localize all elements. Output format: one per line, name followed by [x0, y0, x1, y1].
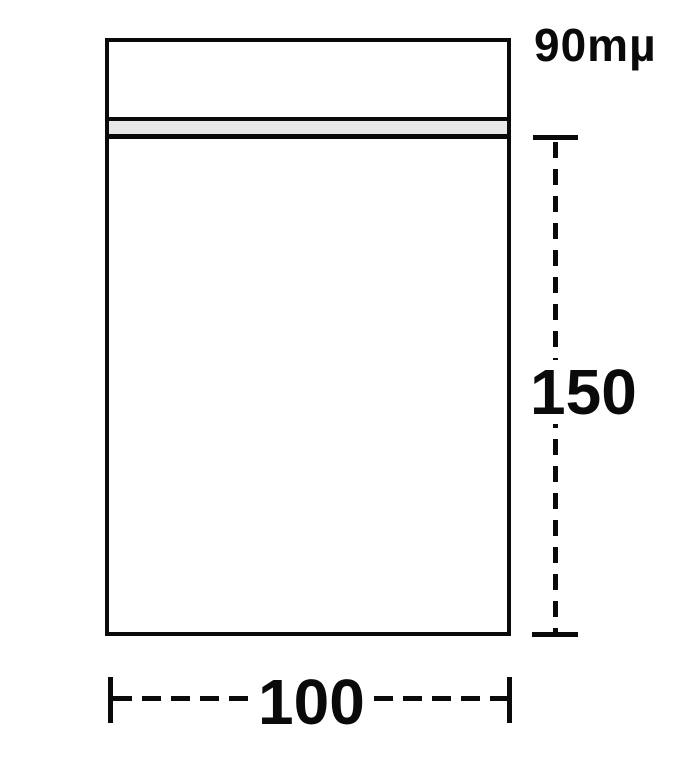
width-dim-label: 100 [250, 670, 373, 734]
width-dim-right-tick [507, 677, 512, 723]
height-dim-bottom-tick [532, 632, 578, 637]
bag-outline [105, 38, 511, 636]
height-dim-label: 150 [527, 360, 640, 424]
thickness-label: 90mµ [534, 22, 657, 68]
bag-dimension-diagram: 90mµ 150 100 [0, 0, 688, 767]
height-dim-top-tick [533, 135, 578, 140]
